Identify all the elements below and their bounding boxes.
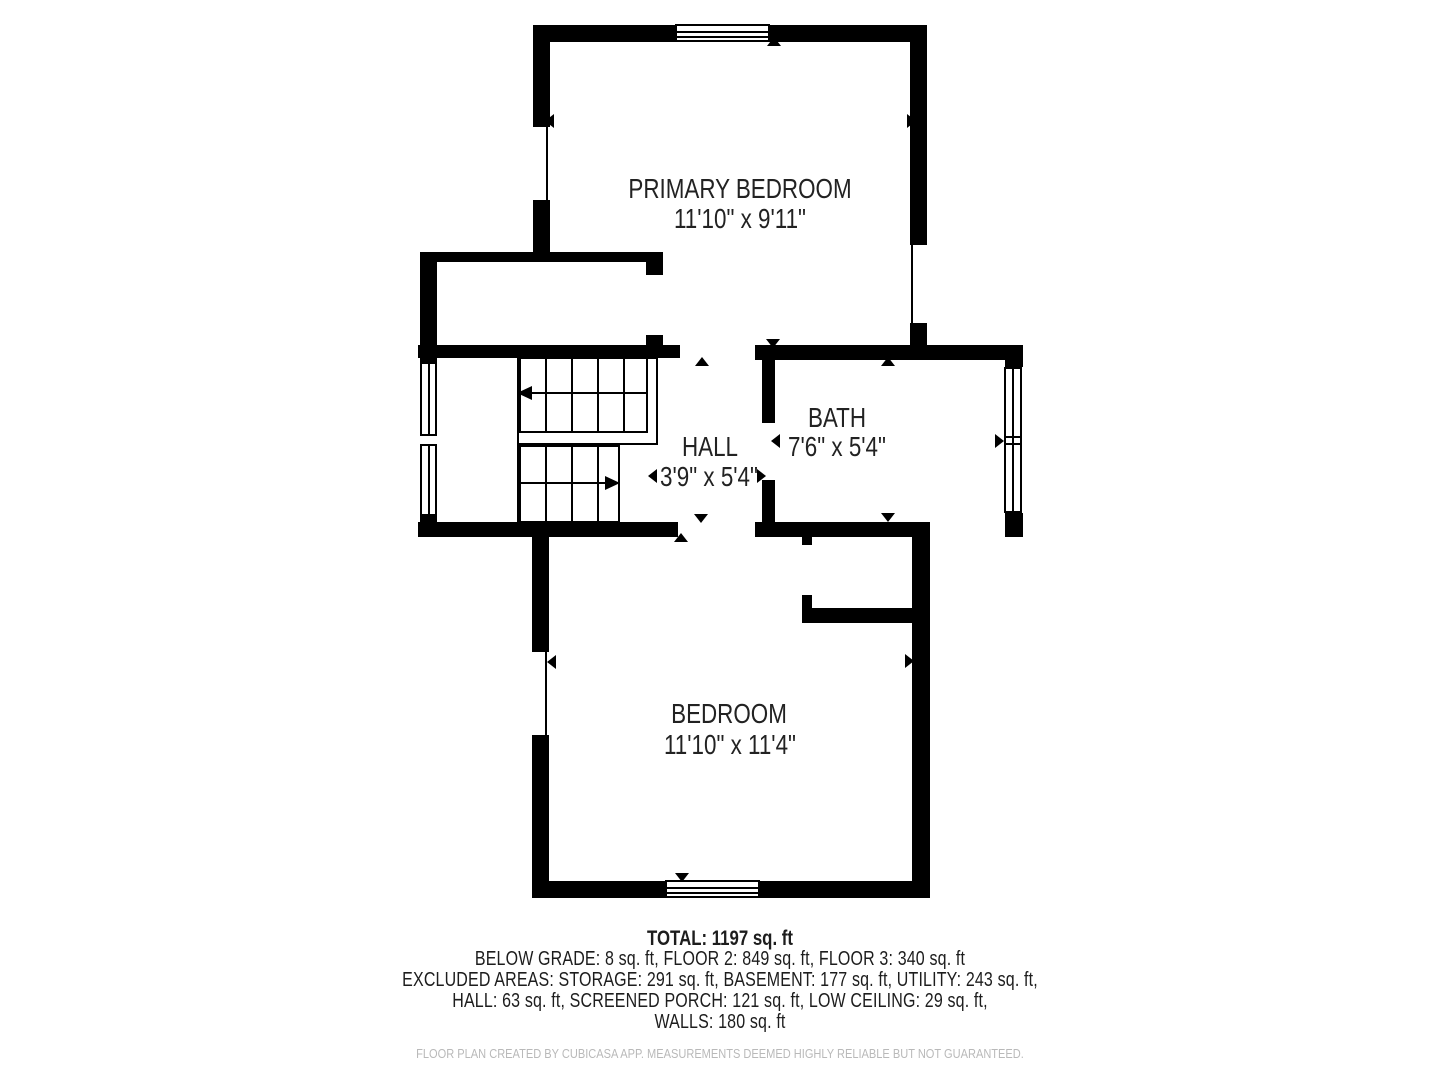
stair-direction-line xyxy=(530,392,648,394)
window xyxy=(665,880,760,898)
wall xyxy=(1005,513,1023,537)
window xyxy=(420,444,437,516)
area-breakdown-line: BELOW GRADE: 8 sq. ft, FLOOR 2: 849 sq. … xyxy=(144,949,1296,970)
opening-marker-up xyxy=(695,357,709,366)
opening-marker-left xyxy=(771,434,780,448)
wall xyxy=(533,200,550,252)
room-dimensions-primary-bedroom: 11'10" x 9'11" xyxy=(674,204,806,234)
wall xyxy=(646,262,663,275)
room-dimensions-bedroom: 11'10" x 11'4" xyxy=(664,730,796,760)
room-label-primary-bedroom: PRIMARY BEDROOM xyxy=(628,174,851,204)
room-dimensions-hall: 3'9" x 5'4" xyxy=(660,462,758,492)
wall xyxy=(802,608,930,623)
wall xyxy=(912,537,930,898)
opening-marker-right xyxy=(995,434,1004,448)
room-label-bath: BATH xyxy=(808,403,866,433)
opening-marker-down xyxy=(675,873,689,882)
opening-marker-left xyxy=(648,469,657,483)
wall xyxy=(532,735,549,898)
area-summary: TOTAL: 1197 sq. ft BELOW GRADE: 8 sq. ft… xyxy=(144,928,1296,1033)
wall xyxy=(532,881,665,898)
opening-marker-up xyxy=(767,37,781,46)
opening-marker-down xyxy=(694,514,708,523)
wall xyxy=(762,358,775,423)
window xyxy=(675,24,770,42)
wall xyxy=(646,335,663,345)
total-area: TOTAL: 1197 sq. ft xyxy=(144,928,1296,949)
disclaimer-text: FLOOR PLAN CREATED BY CUBICASA APP. MEAS… xyxy=(108,1046,1332,1061)
opening-marker-up xyxy=(674,533,688,542)
wall xyxy=(532,537,549,652)
opening-jamb-line xyxy=(546,127,548,200)
staircase-upper-flight xyxy=(517,357,648,433)
stair-direction-line xyxy=(517,482,607,484)
wall xyxy=(762,480,775,524)
wall xyxy=(418,522,678,537)
opening-marker-up xyxy=(881,357,895,366)
opening-marker-left xyxy=(547,655,556,669)
window xyxy=(420,362,437,436)
stair-direction-arrow xyxy=(605,476,620,490)
opening-marker-right xyxy=(907,114,916,128)
opening-marker-down xyxy=(881,513,895,522)
opening-marker-down xyxy=(766,339,780,348)
opening-marker-left xyxy=(545,114,554,128)
opening-marker-right xyxy=(905,654,914,668)
area-breakdown-line: HALL: 63 sq. ft, SCREENED PORCH: 121 sq.… xyxy=(144,991,1296,1012)
wall xyxy=(802,537,812,545)
room-label-hall: HALL xyxy=(682,432,738,462)
area-breakdown-line: WALLS: 180 sq. ft xyxy=(144,1012,1296,1033)
wall xyxy=(1005,345,1023,367)
wall xyxy=(755,522,930,537)
room-dimensions-bath: 7'6" x 5'4" xyxy=(788,432,886,462)
wall xyxy=(533,25,550,127)
opening-marker-right xyxy=(757,469,766,483)
room-label-bedroom: BEDROOM xyxy=(671,699,787,729)
area-breakdown-line: EXCLUDED AREAS: STORAGE: 291 sq. ft, BAS… xyxy=(144,970,1296,991)
stair-direction-arrow xyxy=(517,386,532,400)
opening-jamb-line xyxy=(911,245,913,323)
floor-plan: PRIMARY BEDROOM 11'10" x 9'11" HALL 3'9"… xyxy=(0,0,1440,1080)
window xyxy=(1004,367,1022,513)
wall xyxy=(760,881,930,898)
wall xyxy=(421,252,663,262)
wall xyxy=(910,25,927,245)
